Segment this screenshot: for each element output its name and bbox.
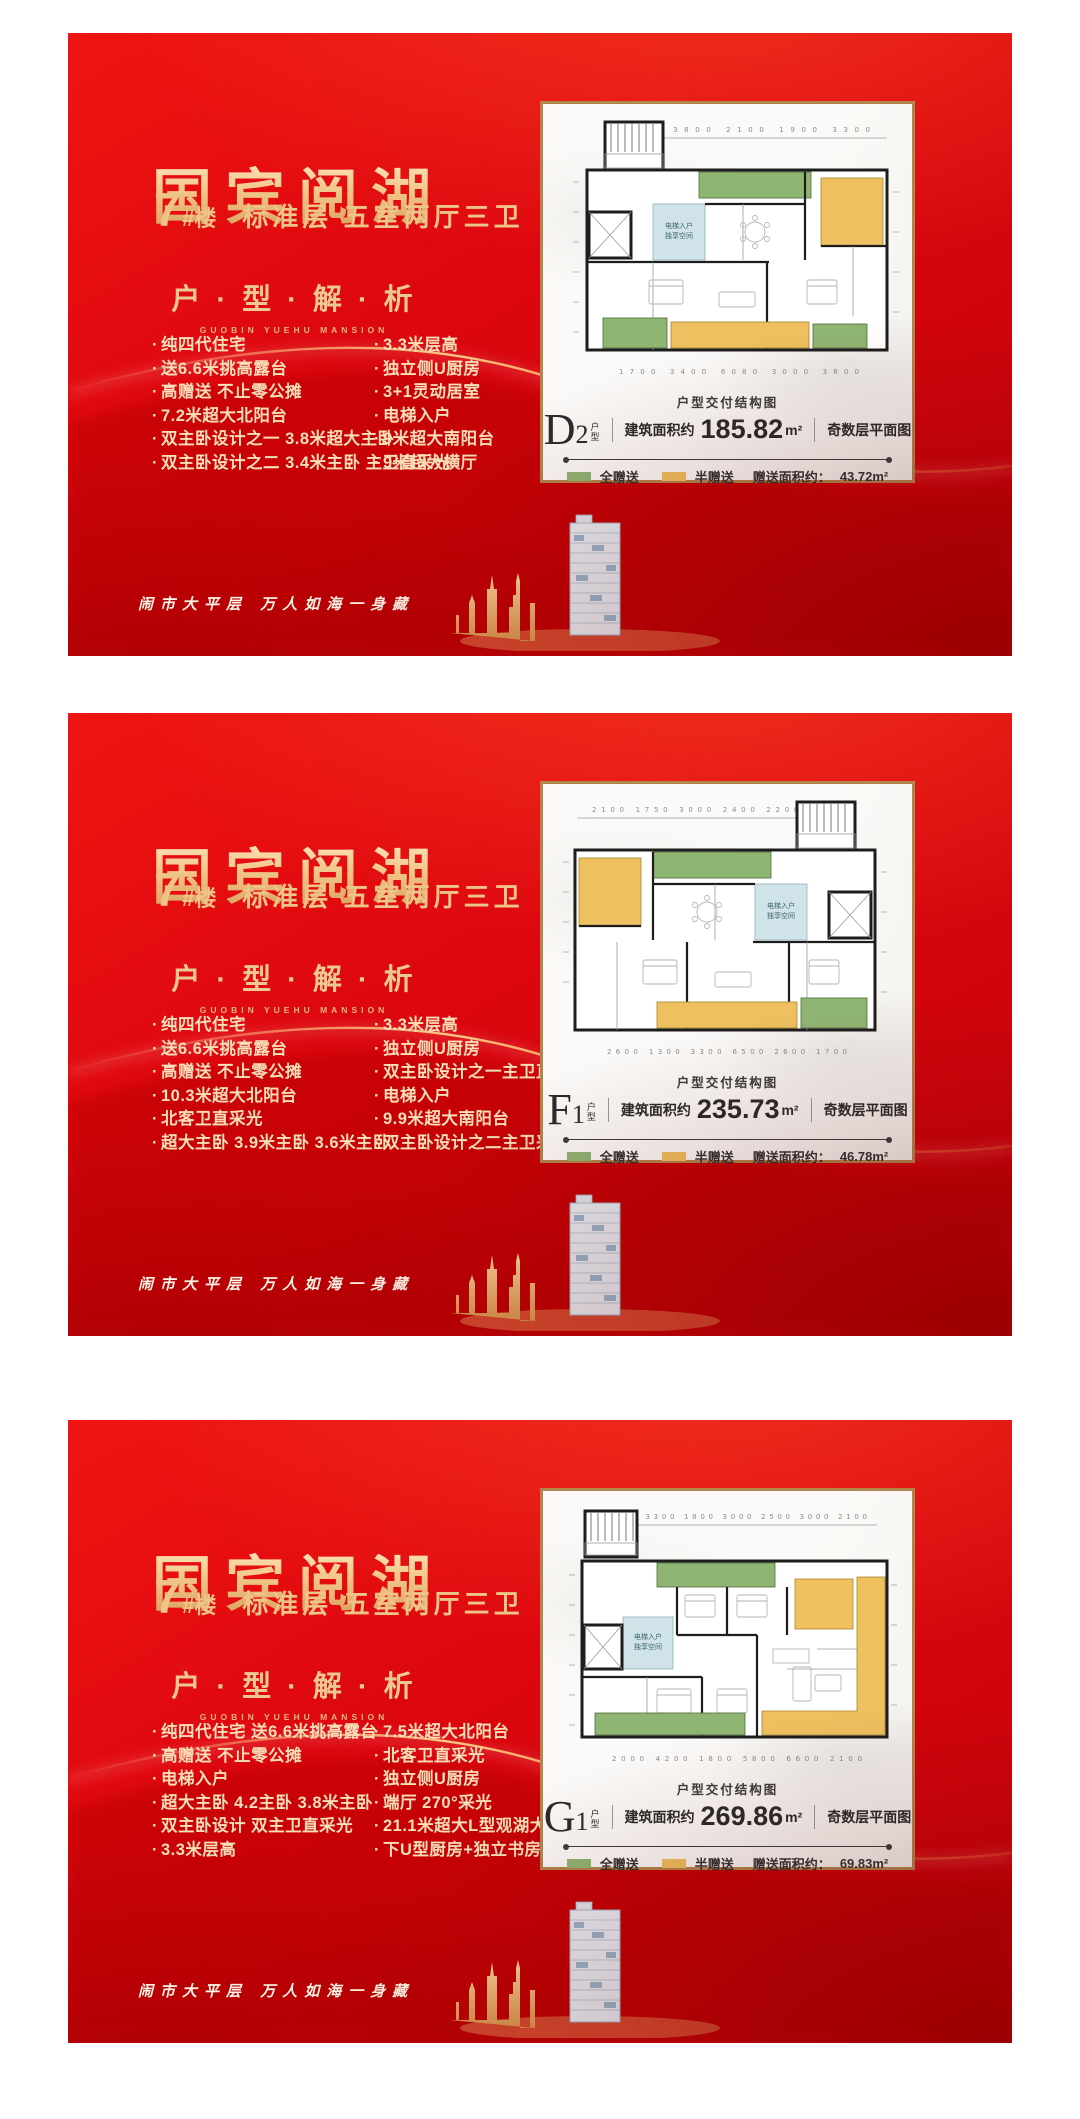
floorplan-card: 2100 1750 3000 2400 2200 1400 电梯入户 独享空间: [540, 781, 915, 1163]
feature-item: 高赠送 不止零公摊: [152, 1745, 374, 1769]
plan-caption: 户型交付结构图: [543, 1072, 912, 1091]
poster-panel-3: 国宾阅湖 7 #楼 标准层 五室两厅三卫 户 · 型 · 解 · 析 GUOBI…: [68, 1420, 1012, 2043]
feature-lists: 纯四代住宅送6.6米挑高露台高赠送 不止零公摊10.3米超大北阳台北客卫直采光超…: [152, 1014, 587, 1155]
feature-item: 纯四代住宅 送6.6米挑高露台: [152, 1721, 374, 1745]
floor-label: 奇数层平面图: [827, 420, 911, 440]
gifted-area-se: [801, 998, 867, 1028]
legend-full-label: 全赠送: [600, 1854, 639, 1873]
feature-item: 高赠送 不止零公摊: [152, 381, 374, 405]
divider: [608, 1098, 609, 1122]
gifted-area-north-balcony: [653, 852, 771, 878]
building-subtitle: 7 #楼 标准层 五室两厅三卫: [154, 186, 524, 234]
legend-half-label: 半赠送: [695, 1147, 734, 1166]
feature-list-left: 纯四代住宅 送6.6米挑高露台高赠送 不止零公摊电梯入户超大主卧 4.2主卧 3…: [152, 1721, 374, 1862]
building-hash-label: #楼: [182, 881, 216, 913]
slogan-tagline: 闹市大平层 万人如海一身藏: [138, 1980, 414, 2001]
slogan-tagline: 闹市大平层 万人如海一身藏: [138, 593, 414, 614]
plan-type-letter: D: [544, 412, 576, 447]
plan-info-row: G 1 户型 建筑面积约 269.86 m² 奇数层平面图: [543, 1799, 912, 1834]
legend-full-swatch: [567, 1859, 591, 1868]
poster-panel-1: 国宾阅湖 7 #楼 标准层 五室两厅三卫 户 · 型 · 解 · 析 GUOBI…: [68, 33, 1012, 656]
feature-item: 3.3米层高: [152, 1839, 374, 1863]
legend-full-label: 全赠送: [600, 1147, 639, 1166]
entry-lobby: 电梯入户 独享空间: [755, 884, 807, 940]
plan-type-letter: G: [544, 1799, 576, 1834]
floor-label: 奇数层平面图: [827, 1807, 911, 1827]
plan-type-digit: 1: [572, 1105, 585, 1126]
half-gift-room: [821, 178, 883, 246]
area-value: 185.82: [701, 414, 784, 445]
feature-item: 超大主卧 4.2主卧 3.8米主卧: [152, 1792, 374, 1816]
entry-lobby: 电梯入户 独享空间: [623, 1617, 673, 1669]
plan-info-row: F 1 户型 建筑面积约 235.73 m² 奇数层平面图: [543, 1092, 912, 1127]
feature-item: 北客卫直采光: [152, 1108, 374, 1132]
feature-item: 纯四代住宅: [152, 1014, 374, 1038]
floorplan-drawing-f1: 2100 1750 3000 2400 2200 1400 电梯入户 独享空间: [557, 792, 902, 1064]
feature-item: 7.2米超大北阳台: [152, 405, 374, 429]
elevator-icon: [584, 1625, 622, 1669]
layout-subtitle: 标准层 五室两厅三卫: [242, 877, 523, 914]
city-skyline-illustration: [430, 1181, 720, 1331]
stairs-icon: [585, 1511, 637, 1557]
tower-building-illustration: [570, 515, 620, 635]
building-number: 7: [154, 866, 180, 913]
legend-half-label: 半赠送: [695, 1854, 734, 1873]
section-header: 户 · 型 · 解 · 析 GUOBIN YUEHU MANSION: [126, 276, 462, 335]
gifted-area-se: [813, 324, 867, 348]
svg-text:电梯入户: 电梯入户: [665, 221, 693, 230]
tower-building-illustration: [570, 1902, 620, 2022]
feature-list-right: 3.3米层高独立侧U厨房3+1灵动居室电梯入户9米超大南阳台9米超大横厅: [374, 334, 495, 475]
stairs-icon: [797, 802, 855, 850]
plan-type-suffix: 户型: [591, 1809, 600, 1829]
area-label: 建筑面积约: [621, 1100, 691, 1120]
section-title: 户 · 型 · 解 · 析: [126, 1663, 462, 1705]
layout-subtitle: 标准层 五室两厅三卫: [242, 1584, 523, 1621]
svg-text:电梯入户: 电梯入户: [767, 901, 795, 910]
floorplan-drawing-d2: 1400 3800 2100 1900 3300 电梯入户 独享空间: [557, 112, 902, 384]
city-skyline-illustration: [430, 501, 720, 651]
plan-caption: 户型交付结构图: [543, 1779, 912, 1798]
building-subtitle: 7 #楼 标准层 五室两厅三卫: [154, 866, 524, 914]
plan-dims-bottom: 2000 4200 1800 5800 6600 2100: [612, 1755, 862, 1763]
svg-text:独享空间: 独享空间: [634, 1642, 662, 1651]
stairs-icon: [605, 122, 663, 170]
divider-line: [565, 1139, 890, 1140]
floorplan-drawing-g1: 1400 3300 1800 3000 2500 3000 2100 电梯入户 …: [557, 1499, 902, 1771]
gift-area-value: 69.83m²: [840, 1856, 888, 1871]
building-number: 7: [154, 186, 180, 233]
plan-caption: 户型交付结构图: [543, 392, 912, 411]
section-title: 户 · 型 · 解 · 析: [126, 956, 462, 998]
section-title: 户 · 型 · 解 · 析: [126, 276, 462, 318]
svg-text:独享空间: 独享空间: [665, 231, 693, 240]
divider: [814, 1805, 815, 1829]
feature-item: 独立侧U厨房: [374, 358, 495, 382]
building-hash-label: #楼: [182, 201, 216, 233]
divider: [612, 418, 613, 442]
plan-info-row: D 2 户型 建筑面积约 185.82 m² 奇数层平面图: [543, 412, 912, 447]
feature-item: 高赠送 不止零公摊: [152, 1061, 374, 1085]
entry-lobby: 电梯入户 独享空间: [653, 204, 705, 260]
feature-item: 超大主卧 3.9米主卧 3.6米主卧: [152, 1132, 374, 1156]
feature-item: 送6.6米挑高露台: [152, 358, 374, 382]
gifted-area-sw: [595, 1713, 745, 1735]
legend-half-label: 半赠送: [695, 467, 734, 486]
slogan-tagline: 闹市大平层 万人如海一身藏: [138, 1273, 414, 1294]
gifted-area-sw: [603, 318, 667, 348]
feature-item: 9米超大横厅: [374, 452, 495, 476]
feature-lists: 纯四代住宅 送6.6米挑高露台高赠送 不止零公摊电梯入户超大主卧 4.2主卧 3…: [152, 1721, 581, 1862]
feature-item: 电梯入户: [152, 1768, 374, 1792]
building-number: 7: [154, 1573, 180, 1620]
half-gift-south-balcony: [657, 1002, 797, 1028]
section-header: 户 · 型 · 解 · 析 GUOBIN YUEHU MANSION: [126, 1663, 462, 1722]
plan-type-suffix: 户型: [591, 422, 600, 442]
area-unit: m²: [781, 1102, 798, 1118]
feature-item: 双主卧设计之一 3.8米超大主卧: [152, 428, 374, 452]
feature-item: 纯四代住宅: [152, 334, 374, 358]
city-skyline-illustration: [430, 1888, 720, 2038]
elevator-icon: [589, 212, 631, 258]
plan-dims-bottom: 2600 1300 3300 6500 2600 1700: [607, 1048, 847, 1056]
elevator-icon: [829, 892, 871, 938]
poster-panel-2: 国宾阅湖 7 #楼 标准层 五室两厅三卫 户 · 型 · 解 · 析 GUOBI…: [68, 713, 1012, 1336]
gift-area-label: 赠送面积约：: [753, 1147, 831, 1166]
svg-text:独享空间: 独享空间: [767, 911, 795, 920]
layout-subtitle: 标准层 五室两厅三卫: [242, 197, 523, 234]
gift-area-label: 赠送面积约：: [753, 467, 831, 486]
plan-type-letter: F: [547, 1092, 571, 1127]
plan-legend: 全赠送 半赠送 赠送面积约： 69.83m²: [543, 1854, 912, 1873]
gift-area-label: 赠送面积约：: [753, 1854, 831, 1873]
legend-full-swatch: [567, 472, 591, 481]
area-label: 建筑面积约: [625, 420, 695, 440]
plan-dims-top: 1400 3300 1800 3000 2500 3000 2100: [607, 1513, 867, 1521]
building-hash-label: #楼: [182, 1588, 216, 1620]
divider: [811, 1098, 812, 1122]
feature-item: 3.3米层高: [374, 334, 495, 358]
area-unit: m²: [785, 422, 802, 438]
plan-legend: 全赠送 半赠送 赠送面积约： 43.72m²: [543, 467, 912, 486]
feature-list-left: 纯四代住宅送6.6米挑高露台高赠送 不止零公摊10.3米超大北阳台北客卫直采光超…: [152, 1014, 374, 1155]
feature-item: 3+1灵动居室: [374, 381, 495, 405]
area-label: 建筑面积约: [625, 1807, 695, 1827]
divider-line: [565, 459, 890, 460]
feature-lists: 纯四代住宅送6.6米挑高露台高赠送 不止零公摊7.2米超大北阳台双主卧设计之一 …: [152, 334, 495, 475]
plan-dims-bottom: 1700 3400 6080 3000 3800: [619, 368, 859, 376]
plan-type-digit: 2: [576, 425, 589, 446]
legend-half-swatch: [662, 1152, 686, 1161]
feature-item: 双主卧设计 双主卫直采光: [152, 1815, 374, 1839]
legend-full-swatch: [567, 1152, 591, 1161]
legend-half-swatch: [662, 472, 686, 481]
gift-area-value: 46.78m²: [840, 1149, 888, 1164]
plan-legend: 全赠送 半赠送 赠送面积约： 46.78m²: [543, 1147, 912, 1166]
divider-line: [565, 1846, 890, 1847]
feature-list-left: 纯四代住宅送6.6米挑高露台高赠送 不止零公摊7.2米超大北阳台双主卧设计之一 …: [152, 334, 374, 475]
gift-area-value: 43.72m²: [840, 469, 888, 484]
svg-text:电梯入户: 电梯入户: [634, 1632, 662, 1641]
tower-building-illustration: [570, 1195, 620, 1315]
gifted-area-north-balcony: [657, 1563, 775, 1587]
plan-type-suffix: 户型: [587, 1102, 596, 1122]
floorplan-card: 1400 3800 2100 1900 3300 电梯入户 独享空间: [540, 101, 915, 483]
legend-half-swatch: [662, 1859, 686, 1868]
half-gift-room: [579, 858, 641, 926]
floorplan-card: 1400 3300 1800 3000 2500 3000 2100 电梯入户 …: [540, 1488, 915, 1870]
area-value: 235.73: [697, 1094, 780, 1125]
feature-item: 电梯入户: [374, 405, 495, 429]
divider: [612, 1805, 613, 1829]
feature-item: 10.3米超大北阳台: [152, 1085, 374, 1109]
feature-item: 双主卧设计之二 3.4米主卧 主卫直采光: [152, 452, 374, 476]
building-subtitle: 7 #楼 标准层 五室两厅三卫: [154, 1573, 524, 1621]
legend-full-label: 全赠送: [600, 467, 639, 486]
gifted-area-north-balcony: [699, 172, 811, 198]
plan-type-digit: 1: [576, 1812, 589, 1833]
feature-item: 送6.6米挑高露台: [152, 1038, 374, 1062]
half-gift-south-balcony: [671, 322, 809, 348]
floor-label: 奇数层平面图: [824, 1100, 908, 1120]
area-value: 269.86: [701, 1801, 784, 1832]
half-gift-room: [795, 1579, 853, 1629]
feature-item: 9米超大南阳台: [374, 428, 495, 452]
area-unit: m²: [785, 1809, 802, 1825]
section-header: 户 · 型 · 解 · 析 GUOBIN YUEHU MANSION: [126, 956, 462, 1015]
divider: [814, 418, 815, 442]
